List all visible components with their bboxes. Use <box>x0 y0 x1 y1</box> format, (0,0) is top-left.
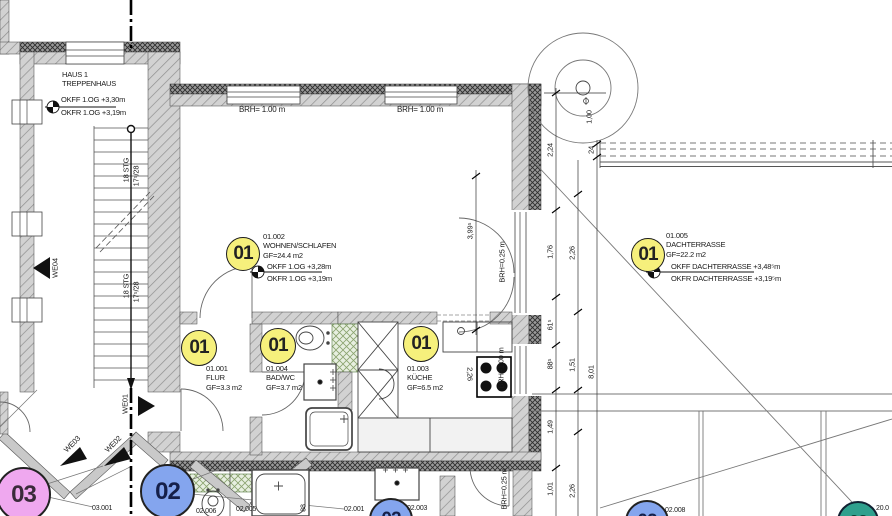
room-area: GF=3.3 m2 <box>206 383 242 392</box>
room-number: 01.001 <box>206 364 228 373</box>
room-number: 01.003 <box>407 364 429 373</box>
room-ref-label: 20.0 <box>876 505 889 514</box>
railing-icon <box>600 140 892 168</box>
room-area: GF=22.2 m2 <box>666 250 706 259</box>
window-sill-label: BRH= 1.00 m <box>239 105 285 115</box>
stairwell-title: HAUS 1 <box>62 70 88 79</box>
room-ref-label: 02.006 <box>196 508 216 516</box>
dim-label: 1,51 <box>568 358 577 372</box>
room-okff: OKFF 1.OG +3,28m <box>267 262 331 271</box>
dim-label: 3,99⁵ <box>466 223 475 240</box>
room-tag-bad: 01 <box>260 328 296 364</box>
stair-flight-lower-ratio: 17⁵/28 <box>132 282 141 303</box>
shower-icon <box>306 408 352 450</box>
dim-label: 24 <box>587 146 596 154</box>
room-name: WOHNEN/SCHLAFEN <box>263 241 336 250</box>
room-area: GF=24.4 m2 <box>263 251 303 260</box>
kitchen-sink-icon <box>458 328 465 335</box>
dim-label: 2,26 <box>568 246 577 260</box>
room-tag-kueche: 01 <box>403 326 439 362</box>
dim-label: 61⁵ <box>546 320 555 331</box>
dim-label: 1,76 <box>546 245 555 259</box>
bath-sink-icon <box>304 364 336 400</box>
room-okfr: OKFR DACHTERRASSE +3,19⁵m <box>671 274 781 283</box>
room-name: BAD/WC <box>266 373 295 382</box>
room-ref-label: 02.005 <box>236 506 256 515</box>
room-name: DACHTERRASSE <box>666 240 725 249</box>
room-ref-label: 02.008 <box>665 507 685 516</box>
stairwell-okfr: OKFR 1.OG +3,19m <box>61 108 126 117</box>
room-area: GF=3.7 m2 <box>266 383 302 392</box>
room-ref-label: 02.003 <box>407 505 427 514</box>
room-ref-label: 03.001 <box>92 505 112 514</box>
window-sill-label: BRH=0.25 m <box>500 468 509 509</box>
unit-circle-02: 02 <box>140 464 195 516</box>
toilet-icon <box>296 326 329 350</box>
room-number: 01.002 <box>263 232 285 241</box>
dim-label: 8,01 <box>587 365 596 379</box>
stairwell-subtitle: TREPPENHAUS <box>62 79 116 88</box>
unit-marker-we04: WE04 <box>51 258 60 278</box>
dim-label: 1,49 <box>546 420 555 434</box>
stair-flight-upper-ratio: 17⁵/28 <box>132 166 141 187</box>
window-sill-label: BRH=1.00 m <box>497 347 506 388</box>
dim-label: 2,24 <box>546 143 555 157</box>
room-name: FLUR <box>206 373 225 382</box>
stove-icon <box>477 357 511 397</box>
room-okff: OKFF DACHTERRASSE +3,48⁵m <box>671 262 780 271</box>
room-tag-flur: 01 <box>181 330 217 366</box>
floor-plan-canvas: HAUS 1 TREPPENHAUS OKFF 1.OG +3,30m OKFR… <box>0 0 892 516</box>
dim-label: 1,01 <box>546 482 555 496</box>
room-number: 01.005 <box>666 231 688 240</box>
window-sill-label: BRH= 1.00 m <box>397 105 443 115</box>
plan-linework <box>0 0 892 516</box>
dim-label: 88⁵ <box>546 359 555 370</box>
dim-label: 2,26 <box>466 367 475 381</box>
room-tag-terrasse: 01 <box>631 238 665 272</box>
room-area: GF=6.5 m2 <box>407 383 443 392</box>
dim-label: 88 <box>301 504 308 511</box>
stair-flight-lower-steps: 18 STG <box>122 274 131 299</box>
stairwell-okff: OKFF 1.OG +3,30m <box>61 95 125 104</box>
room-okfr: OKFR 1.OG +3,19m <box>267 274 332 283</box>
sink2-icon <box>375 468 419 501</box>
dim-label: 2,26 <box>568 484 577 498</box>
dim-label: 1,00 <box>585 110 594 124</box>
room-ref-label: 02.001 <box>344 506 364 515</box>
window-sill-label: BRH=0.25 m <box>498 241 507 282</box>
stair-flight-upper-steps: 18 STG <box>122 158 131 183</box>
room-number: 01.004 <box>266 364 288 373</box>
stair-tower-walls <box>0 0 180 452</box>
room-name: KÜCHE <box>407 373 432 382</box>
room-tag-wohnen: 01 <box>226 237 260 271</box>
unit-marker-we01: WE01 <box>121 394 130 414</box>
